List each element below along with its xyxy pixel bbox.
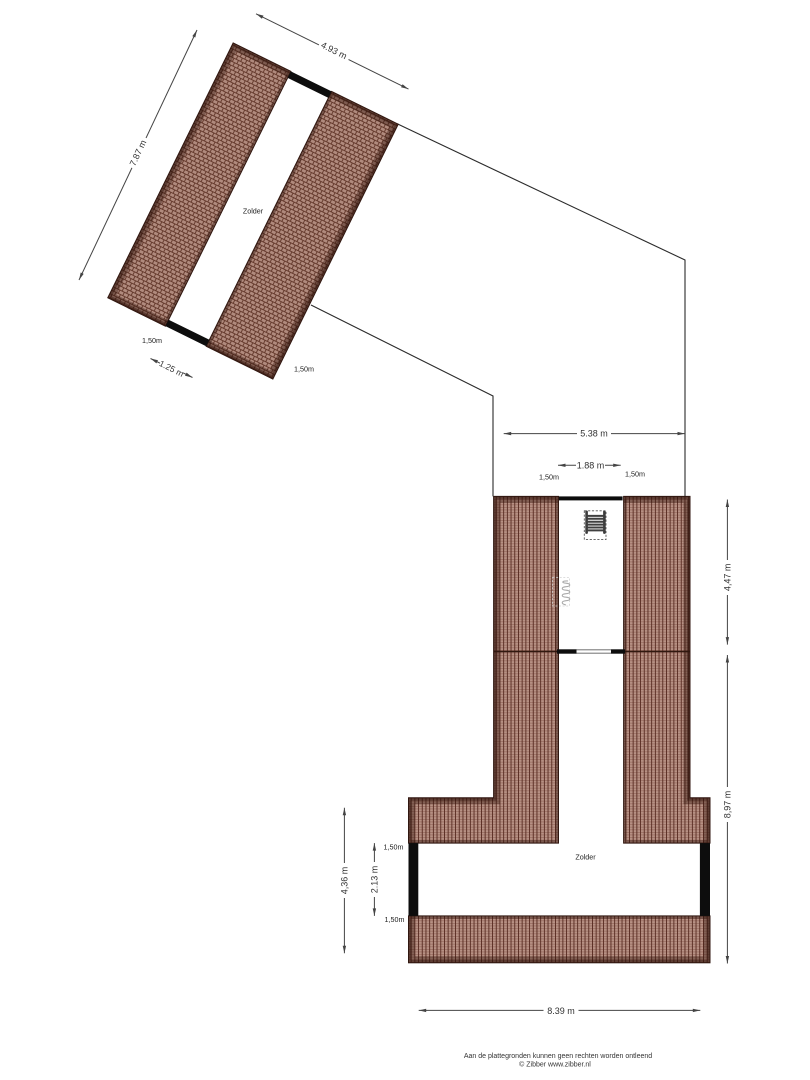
svg-text:1,50m: 1,50m	[385, 915, 405, 924]
svg-text:Zolder: Zolder	[243, 207, 264, 216]
svg-text:© Zibber www.zibber.nl: © Zibber www.zibber.nl	[519, 1061, 591, 1069]
svg-text:Zolder: Zolder	[575, 853, 596, 862]
svg-text:4,47 m: 4,47 m	[723, 564, 733, 592]
svg-text:5.38 m: 5.38 m	[580, 429, 608, 439]
svg-text:2.13 m: 2.13 m	[370, 866, 380, 894]
svg-text:8.39 m: 8.39 m	[547, 1006, 575, 1016]
svg-text:1,50m: 1,50m	[294, 365, 314, 374]
svg-text:8,97 m: 8,97 m	[723, 791, 733, 819]
svg-text:1,50m: 1,50m	[384, 843, 404, 852]
svg-text:1.88 m: 1.88 m	[577, 460, 605, 470]
svg-text:1,50m: 1,50m	[625, 470, 645, 479]
svg-text:1,50m: 1,50m	[142, 336, 162, 345]
svg-text:1,50m: 1,50m	[539, 472, 559, 481]
svg-text:1.25 m: 1.25 m	[158, 358, 186, 379]
svg-text:4,36 m: 4,36 m	[340, 867, 350, 895]
svg-text:Aan de plattegronden kunnen ge: Aan de plattegronden kunnen geen rechten…	[464, 1053, 652, 1060]
